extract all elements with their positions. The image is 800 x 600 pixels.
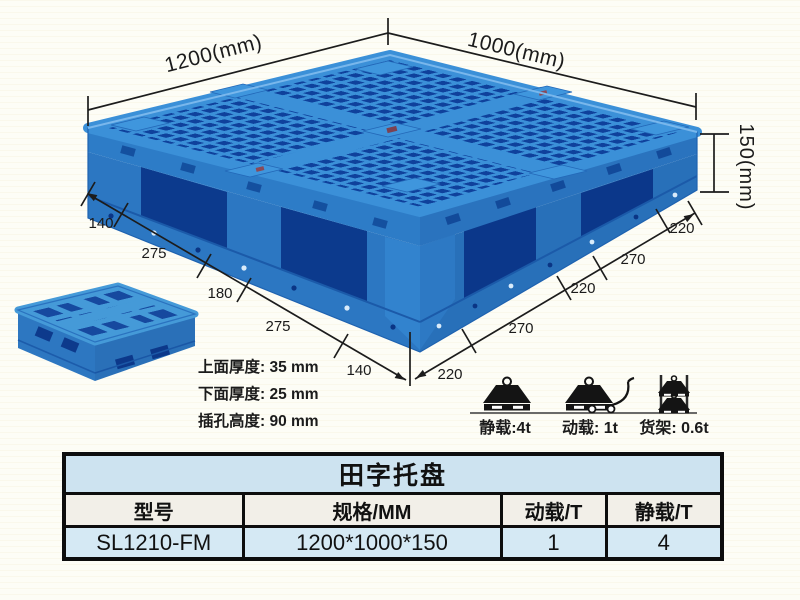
col-header-model: 型号 — [64, 494, 243, 527]
table-title-row: 田字托盘 — [64, 454, 722, 494]
thickness-notes: 上面厚度: 35 mm 下面厚度: 25 mm 插孔高度: 90 mm — [198, 357, 319, 430]
table-data-row: SL1210-FM 1200*1000*150 1 4 — [64, 527, 722, 560]
dim-left-seg-2: 275 — [141, 245, 166, 262]
col-header-static-load: 静载/T — [606, 494, 722, 527]
dim-left-seg-4: 275 — [265, 318, 290, 335]
spec-table: 田字托盘 型号 规格/MM 动载/T 静载/T SL1210-FM 1200*1… — [62, 452, 724, 561]
dim-right-seg-4: 270 — [620, 251, 645, 268]
dim-label-1200: 1200(mm) — [162, 30, 264, 77]
cell-spec: 1200*1000*150 — [243, 527, 501, 560]
dynamic-load-icon — [565, 378, 634, 413]
static-load-label: 静载:4t — [479, 418, 531, 437]
dim-left-seg-5: 140 — [346, 362, 371, 379]
dynamic-load-label: 动载: 1t — [562, 419, 619, 437]
load-ratings: 静载:4t 动载: 1t 货架: 0.6t — [470, 375, 709, 437]
dim-label-1000: 1000(mm) — [465, 28, 567, 74]
dim-left-seg-1: 140 — [88, 215, 113, 232]
rack-load-icon — [658, 375, 690, 414]
table-header-row: 型号 规格/MM 动载/T 静载/T — [64, 494, 722, 527]
col-header-dynamic-load: 动载/T — [501, 494, 606, 527]
small-pallet-image — [18, 286, 195, 381]
table-title: 田字托盘 — [64, 454, 722, 494]
note-bottom-thickness: 下面厚度: 25 mm — [198, 384, 319, 403]
dim-left-seg-3: 180 — [207, 285, 232, 302]
static-load-icon — [483, 378, 531, 411]
cell-dynamic-load: 1 — [501, 527, 606, 560]
rack-load-label: 货架: 0.6t — [639, 418, 709, 437]
dim-right-seg-5: 220 — [669, 220, 694, 237]
cell-static-load: 4 — [606, 527, 722, 560]
pallet-spec-sheet: 1200(mm) 1000(mm) 150(mm) 140 275 180 27… — [0, 0, 800, 600]
note-socket-height: 插孔高度: 90 mm — [198, 411, 319, 430]
note-top-thickness: 上面厚度: 35 mm — [198, 357, 319, 376]
cell-model: SL1210-FM — [64, 527, 243, 560]
dim-label-150: 150(mm) — [735, 123, 757, 210]
col-header-spec: 规格/MM — [243, 494, 501, 527]
dim-right-seg-1: 220 — [437, 366, 462, 383]
dim-right-seg-2: 270 — [508, 320, 533, 337]
dim-right-seg-3: 220 — [570, 280, 595, 297]
